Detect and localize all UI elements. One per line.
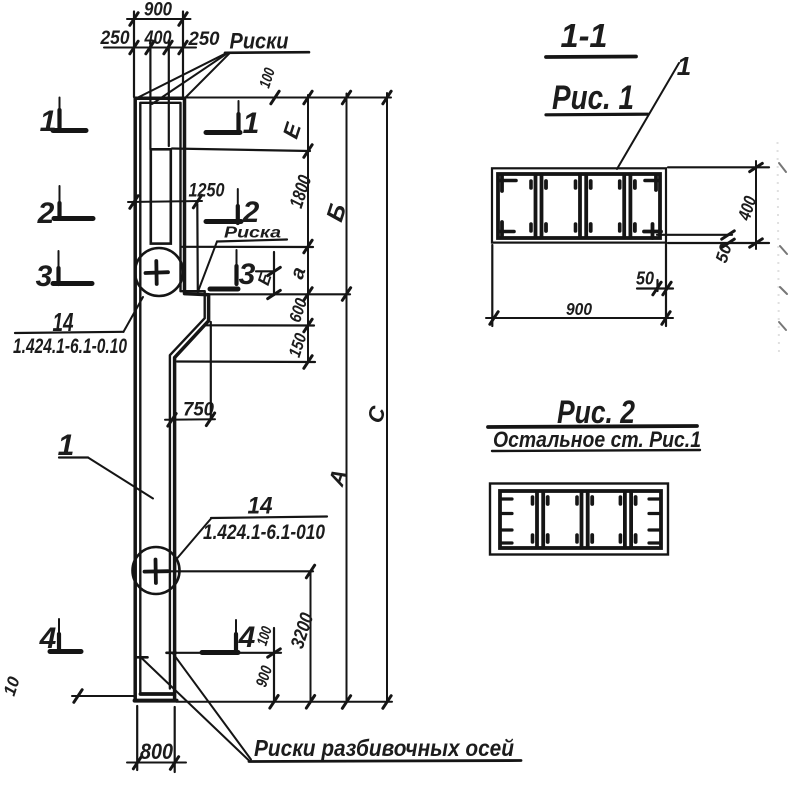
- svg-text:Б: Б: [321, 200, 352, 225]
- svg-text:1.424.1-6.1-010: 1.424.1-6.1-010: [203, 521, 325, 544]
- svg-text:1-1: 1-1: [561, 17, 608, 54]
- svg-text:Е: Е: [278, 119, 307, 142]
- svg-text:900: 900: [566, 299, 592, 319]
- svg-text:1250: 1250: [189, 181, 225, 202]
- svg-text:800: 800: [140, 739, 174, 764]
- svg-text:Остальное ст. Рис.1: Остальное ст. Рис.1: [493, 427, 701, 452]
- svg-text:1800: 1800: [286, 173, 316, 211]
- svg-text:1: 1: [677, 51, 691, 81]
- svg-text:Рис. 1: Рис. 1: [552, 79, 634, 117]
- svg-text:150: 150: [285, 331, 311, 360]
- svg-text:1: 1: [40, 105, 57, 138]
- svg-text:250: 250: [100, 28, 130, 49]
- svg-text:100: 100: [254, 624, 276, 648]
- svg-text:а: а: [286, 264, 310, 281]
- svg-text:900: 900: [144, 0, 172, 21]
- svg-text:2: 2: [37, 197, 55, 230]
- svg-text:250: 250: [188, 29, 220, 50]
- svg-text:1: 1: [243, 107, 260, 140]
- svg-text:Риски разбивочных осей: Риски разбивочных осей: [254, 735, 514, 761]
- svg-text:50: 50: [636, 269, 654, 289]
- svg-text:400: 400: [144, 28, 172, 49]
- svg-text:3200: 3200: [287, 610, 318, 651]
- svg-text:3: 3: [36, 260, 53, 293]
- svg-text:100: 100: [257, 66, 279, 91]
- svg-text:4: 4: [238, 621, 256, 654]
- svg-text:4: 4: [39, 622, 57, 655]
- svg-text:1.424.1-6.1-0.10: 1.424.1-6.1-0.10: [13, 335, 127, 358]
- svg-text:А: А: [323, 466, 352, 490]
- svg-text:10: 10: [0, 674, 24, 698]
- svg-text:3: 3: [239, 258, 256, 291]
- svg-text:900: 900: [253, 664, 276, 689]
- svg-text:14: 14: [248, 493, 273, 520]
- svg-text:Риски: Риски: [230, 29, 289, 54]
- svg-text:50: 50: [712, 241, 736, 265]
